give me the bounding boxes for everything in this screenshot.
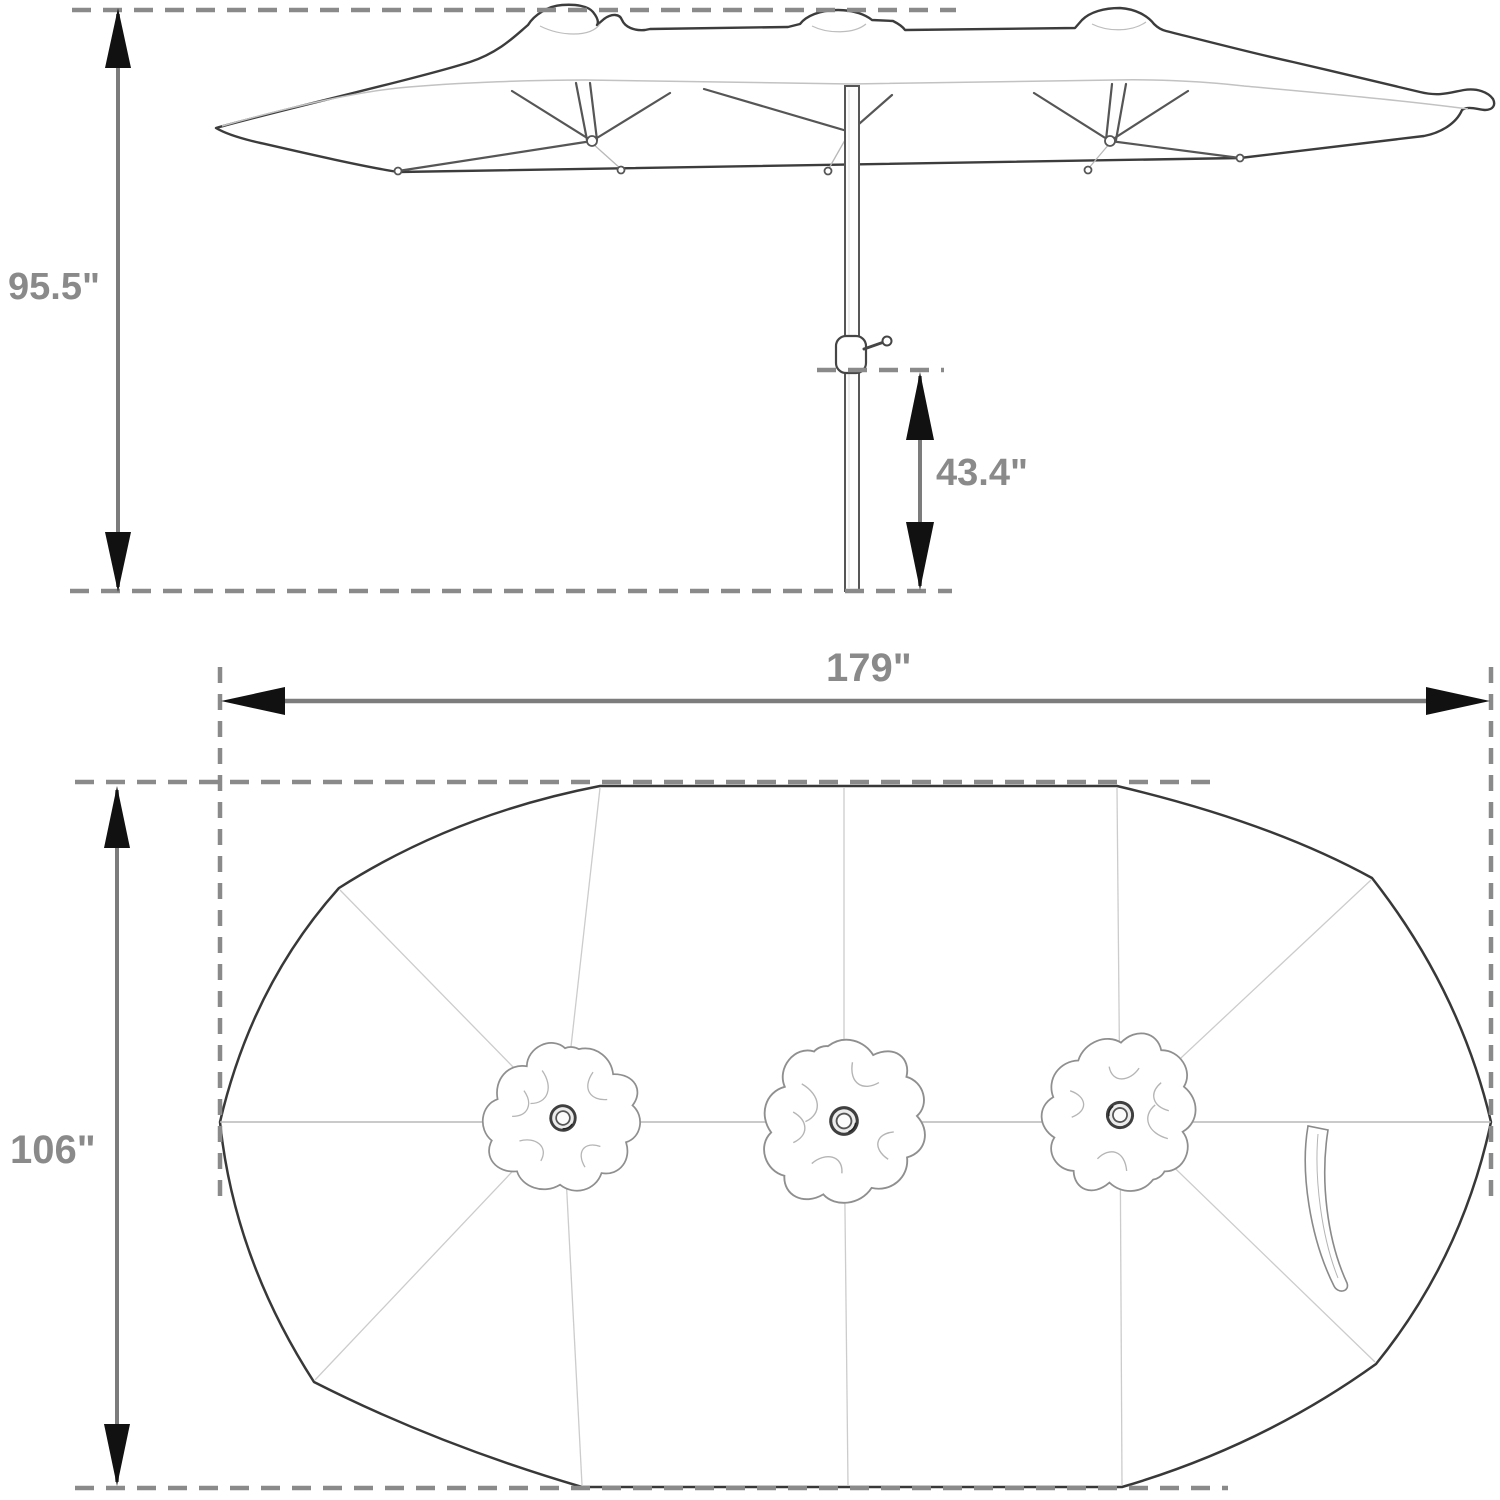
crank-handle <box>836 336 892 373</box>
width-dimension-arrow <box>221 687 1490 715</box>
pole-height-dimension-arrow <box>906 372 934 590</box>
canopy-width-label: 179" <box>826 648 912 688</box>
depth-dimension-arrow <box>104 786 130 1486</box>
umbrella-top-view <box>75 667 1491 1488</box>
umbrella-side-view <box>70 5 1494 592</box>
canopy-depth-label: 106" <box>10 1130 96 1170</box>
pole-bottom-height-label: 43.4" <box>936 454 1028 492</box>
umbrella-dimension-diagram: 95.5" 43.4" 179" 106" <box>0 0 1500 1500</box>
overall-height-label: 95.5" <box>8 268 100 306</box>
height-dimension-arrow <box>105 8 131 592</box>
diagram-canvas <box>0 0 1500 1500</box>
